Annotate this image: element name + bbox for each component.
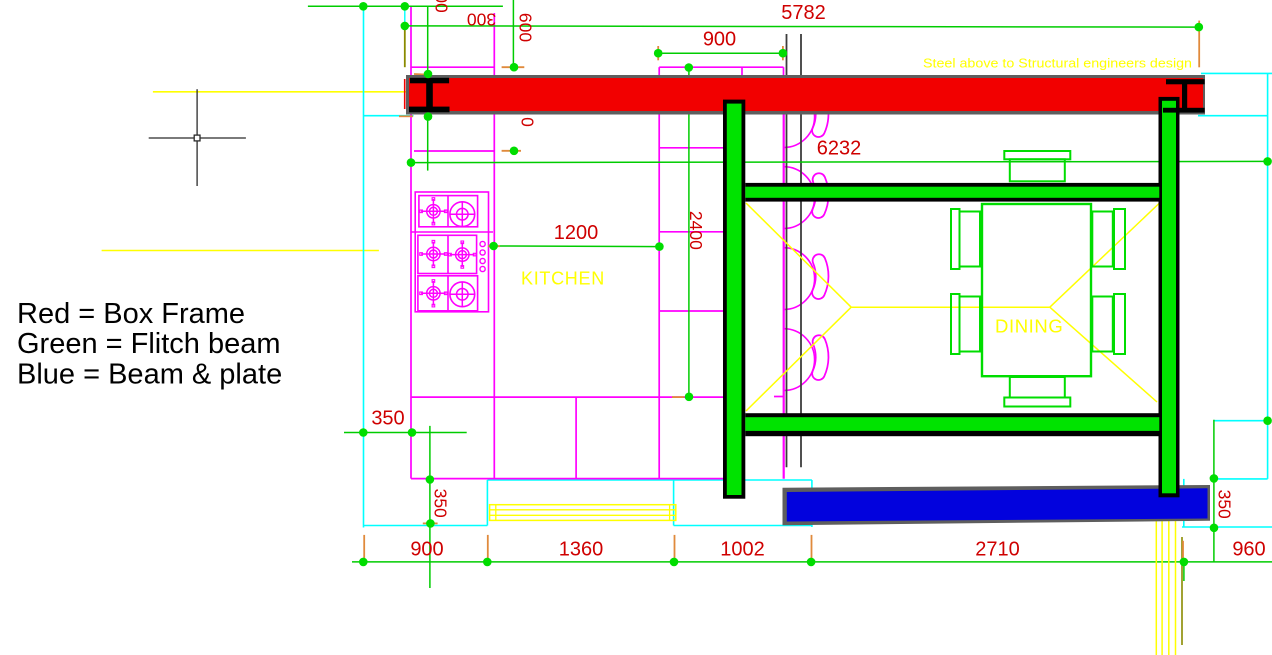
svg-text:600: 600 [516, 13, 536, 42]
svg-text:Red = Box Frame: Red = Box Frame [17, 298, 245, 330]
svg-text:2400: 2400 [686, 211, 706, 250]
svg-text:0: 0 [518, 117, 538, 127]
svg-text:1200: 1200 [554, 222, 599, 244]
svg-text:350: 350 [430, 489, 450, 518]
svg-text:1002: 1002 [720, 539, 765, 561]
svg-text:Blue = Beam & plate: Blue = Beam & plate [17, 358, 282, 390]
svg-text:900: 900 [703, 29, 736, 51]
svg-text:KITCHEN: KITCHEN [521, 269, 605, 289]
svg-text:350: 350 [371, 408, 404, 430]
svg-text:2710: 2710 [975, 539, 1020, 561]
svg-text:5782: 5782 [781, 2, 826, 24]
svg-text:DINING: DINING [995, 316, 1063, 337]
svg-text:00: 00 [431, 0, 451, 13]
svg-text:6232: 6232 [817, 138, 862, 160]
svg-text:300: 300 [467, 10, 496, 30]
svg-text:960: 960 [1232, 539, 1265, 561]
svg-text:Green = Flitch beam: Green = Flitch beam [17, 328, 281, 360]
svg-text:900: 900 [410, 539, 443, 561]
svg-text:350: 350 [1215, 490, 1235, 519]
svg-text:1360: 1360 [559, 539, 604, 561]
svg-text:Steel above to Structural engi: Steel above to Structural engineers desi… [923, 57, 1192, 71]
